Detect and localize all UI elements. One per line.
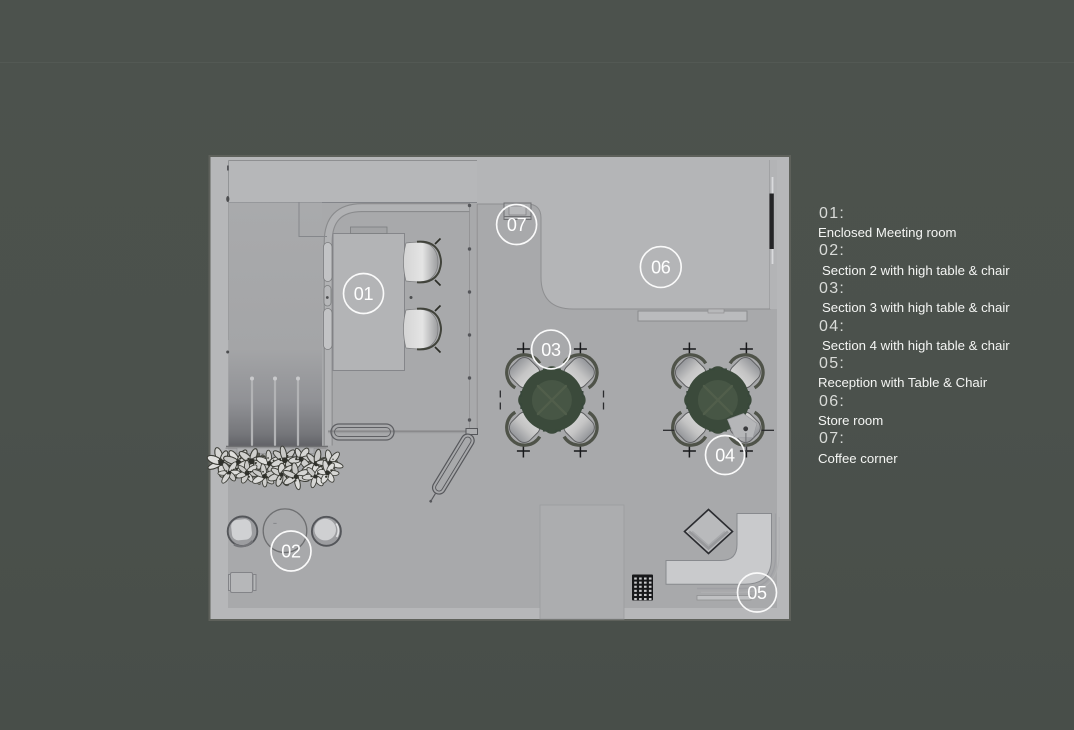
svg-text:06: 06 xyxy=(651,258,671,278)
svg-text:03: 03 xyxy=(541,340,561,360)
svg-text:05: 05 xyxy=(747,583,767,603)
svg-text:01: 01 xyxy=(354,284,374,304)
svg-text:04: 04 xyxy=(715,446,735,466)
svg-text:07: 07 xyxy=(507,215,527,235)
svg-text:02: 02 xyxy=(281,542,301,562)
